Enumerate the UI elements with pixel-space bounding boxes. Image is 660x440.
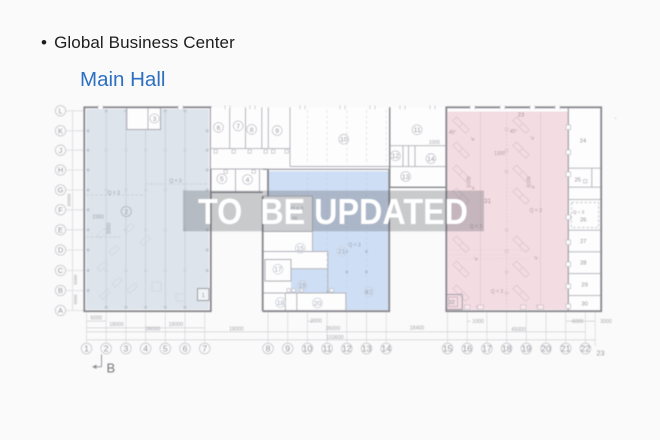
svg-text:36000: 36000 — [326, 326, 341, 332]
svg-text:E: E — [58, 225, 63, 234]
svg-text:5: 5 — [163, 343, 168, 353]
svg-text:14: 14 — [381, 343, 391, 353]
svg-text:29: 29 — [581, 283, 587, 289]
svg-text:17: 17 — [274, 267, 282, 274]
svg-text:26: 26 — [580, 218, 586, 224]
svg-text:4: 4 — [246, 177, 250, 184]
svg-text:6: 6 — [183, 343, 188, 353]
svg-text:3: 3 — [124, 343, 129, 353]
svg-text:8: 8 — [250, 127, 254, 134]
svg-text:32: 32 — [449, 300, 455, 306]
svg-text:23: 23 — [518, 113, 524, 119]
svg-text:12: 12 — [392, 153, 400, 160]
svg-text:6000: 6000 — [572, 319, 584, 325]
svg-text:2000: 2000 — [310, 319, 322, 325]
svg-text:C: C — [58, 266, 64, 275]
svg-text:17: 17 — [482, 343, 492, 353]
svg-text:Q = 3: Q = 3 — [108, 190, 121, 196]
svg-text:8: 8 — [266, 343, 271, 353]
svg-text:H: H — [58, 166, 63, 175]
svg-text:18: 18 — [502, 343, 512, 353]
svg-text:4: 4 — [143, 343, 148, 353]
svg-text:5000: 5000 — [107, 223, 113, 234]
svg-text:6000: 6000 — [467, 176, 473, 187]
svg-text:6000: 6000 — [91, 315, 103, 321]
svg-text:11: 11 — [323, 343, 332, 353]
svg-text:1: 1 — [84, 343, 89, 353]
svg-text:18: 18 — [277, 300, 285, 307]
svg-text:16: 16 — [462, 343, 472, 353]
svg-text:24: 24 — [580, 139, 587, 145]
svg-text:Q = 3: Q = 3 — [491, 289, 504, 295]
svg-text:14: 14 — [427, 156, 435, 163]
svg-text:27: 27 — [580, 239, 586, 245]
svg-text:18000: 18000 — [229, 326, 244, 332]
svg-text:2: 2 — [124, 209, 128, 216]
svg-text:13: 13 — [362, 343, 372, 353]
svg-text:15: 15 — [297, 246, 305, 253]
svg-text:153600: 153600 — [326, 335, 343, 341]
svg-text:18400: 18400 — [410, 326, 425, 332]
svg-text:9: 9 — [275, 128, 279, 135]
svg-text:J: J — [59, 146, 63, 155]
svg-text:21: 21 — [338, 249, 346, 256]
svg-text:1000: 1000 — [472, 319, 484, 325]
svg-text:19: 19 — [522, 343, 532, 353]
svg-text:6: 6 — [217, 125, 221, 132]
svg-text:6000: 6000 — [73, 274, 78, 285]
svg-text:20: 20 — [541, 343, 551, 353]
svg-text:22: 22 — [581, 343, 591, 353]
svg-text:20: 20 — [314, 300, 322, 307]
svg-text:Q = 3: Q = 3 — [573, 210, 585, 215]
svg-text:B: B — [107, 361, 116, 376]
svg-text:11: 11 — [414, 127, 421, 134]
svg-text:18000: 18000 — [169, 322, 184, 328]
svg-text:12: 12 — [342, 343, 352, 353]
svg-text:Q = 3: Q = 3 — [348, 243, 361, 249]
svg-text:28: 28 — [580, 261, 586, 267]
svg-text:19: 19 — [299, 283, 307, 290]
svg-text:D: D — [58, 246, 63, 255]
svg-text:7: 7 — [236, 123, 240, 130]
svg-text:9: 9 — [285, 343, 290, 353]
svg-text:18000: 18000 — [109, 322, 124, 328]
svg-text:1: 1 — [202, 293, 205, 299]
svg-text:15: 15 — [443, 343, 453, 353]
svg-text:F: F — [58, 205, 63, 214]
svg-text:K: K — [58, 126, 63, 135]
svg-text:B: B — [58, 286, 63, 295]
svg-text:21: 21 — [561, 343, 571, 353]
svg-text:30: 30 — [581, 301, 587, 307]
svg-text:45°: 45° — [449, 130, 457, 136]
svg-text:G: G — [58, 186, 64, 195]
svg-text:-: - — [615, 116, 617, 122]
svg-text:45000: 45000 — [511, 327, 526, 333]
svg-text:Q = 3: Q = 3 — [530, 208, 543, 214]
svg-text:10: 10 — [340, 137, 348, 144]
svg-text:45°: 45° — [510, 129, 518, 135]
svg-text:TO BE UPDATED: TO BE UPDATED — [198, 191, 468, 232]
svg-text:1000: 1000 — [429, 140, 440, 146]
svg-text:6000: 6000 — [73, 294, 78, 305]
svg-text:25: 25 — [575, 178, 581, 184]
svg-text:Q = 3: Q = 3 — [169, 178, 182, 184]
svg-text:6000: 6000 — [527, 176, 533, 187]
svg-text:22: 22 — [365, 289, 373, 296]
svg-text:A: A — [58, 306, 63, 315]
svg-text:7: 7 — [202, 343, 207, 353]
svg-text:3: 3 — [153, 116, 157, 123]
svg-text:1300: 1300 — [494, 151, 505, 157]
svg-text:13: 13 — [402, 174, 410, 181]
svg-text:60000: 60000 — [66, 193, 71, 206]
svg-text:5: 5 — [220, 176, 224, 183]
svg-text:L: L — [58, 106, 62, 115]
svg-text:10: 10 — [303, 343, 313, 353]
svg-text:23: 23 — [597, 349, 605, 358]
svg-text:3000: 3000 — [600, 319, 612, 325]
svg-text:36000: 36000 — [146, 326, 161, 332]
svg-text:31: 31 — [484, 198, 492, 205]
svg-text:2393: 2393 — [92, 214, 103, 220]
svg-text:2: 2 — [104, 343, 109, 353]
